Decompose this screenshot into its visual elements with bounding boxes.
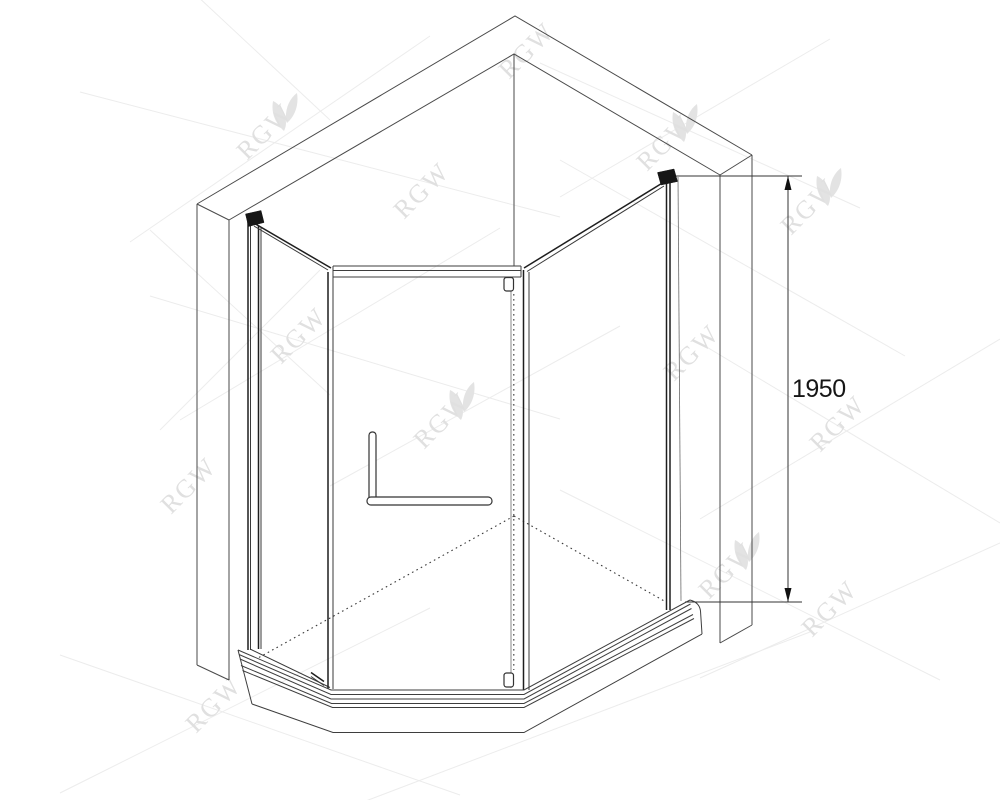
- watermark-stamp: RGW: [796, 575, 864, 643]
- shower-door: [328, 272, 514, 689]
- glass-panel-left: [246, 211, 332, 688]
- door-pivot-hinge-top: [504, 278, 514, 292]
- glass-panel-right: [524, 169, 682, 690]
- arrowhead-up-icon: [785, 176, 792, 190]
- hidden-floor-edge-right: [514, 516, 666, 602]
- tray-end-right: [690, 600, 702, 634]
- hidden-floor-edge-left: [258, 516, 514, 658]
- watermark-stamp: RGW: [231, 93, 299, 165]
- dimension-value: 1950: [792, 375, 846, 403]
- glass-clamp-left: [246, 211, 265, 227]
- svg-text:RGW: RGW: [493, 17, 561, 85]
- door-pivot-hinge-bottom: [504, 673, 514, 687]
- watermark-stamp: RGW: [155, 452, 223, 520]
- glass-clamp-right: [658, 169, 678, 185]
- watermark-stamp: RGW: [408, 382, 476, 454]
- wall-profile-right: [678, 177, 681, 601]
- watermark-stamps: RGW RGW RGW RGW RGW RGW RGW: [155, 17, 872, 739]
- arrowhead-down-icon: [785, 588, 792, 602]
- svg-text:RGW: RGW: [265, 302, 333, 370]
- shower-tray: [238, 600, 702, 733]
- watermark-stamp: RGW: [493, 17, 561, 85]
- shower-enclosure-drawing: RGW RGW RGW RGW RGW RGW RGW: [0, 0, 1000, 800]
- svg-text:RGW: RGW: [388, 157, 456, 225]
- watermark-stamp: RGW: [388, 157, 456, 225]
- watermark-stamp: RGW: [775, 168, 843, 240]
- watermark-layer: RGW RGW RGW RGW RGW RGW RGW: [60, 0, 1000, 800]
- svg-text:RGW: RGW: [155, 452, 223, 520]
- hidden-edges: [258, 294, 666, 670]
- watermark-stamp: RGW: [265, 302, 333, 370]
- watermark-stamp: RGW: [631, 104, 699, 176]
- technical-drawing-canvas: RGW RGW RGW RGW RGW RGW RGW: [0, 0, 1000, 800]
- svg-text:RGW: RGW: [796, 575, 864, 643]
- watermark-stamp: RGW: [693, 532, 761, 604]
